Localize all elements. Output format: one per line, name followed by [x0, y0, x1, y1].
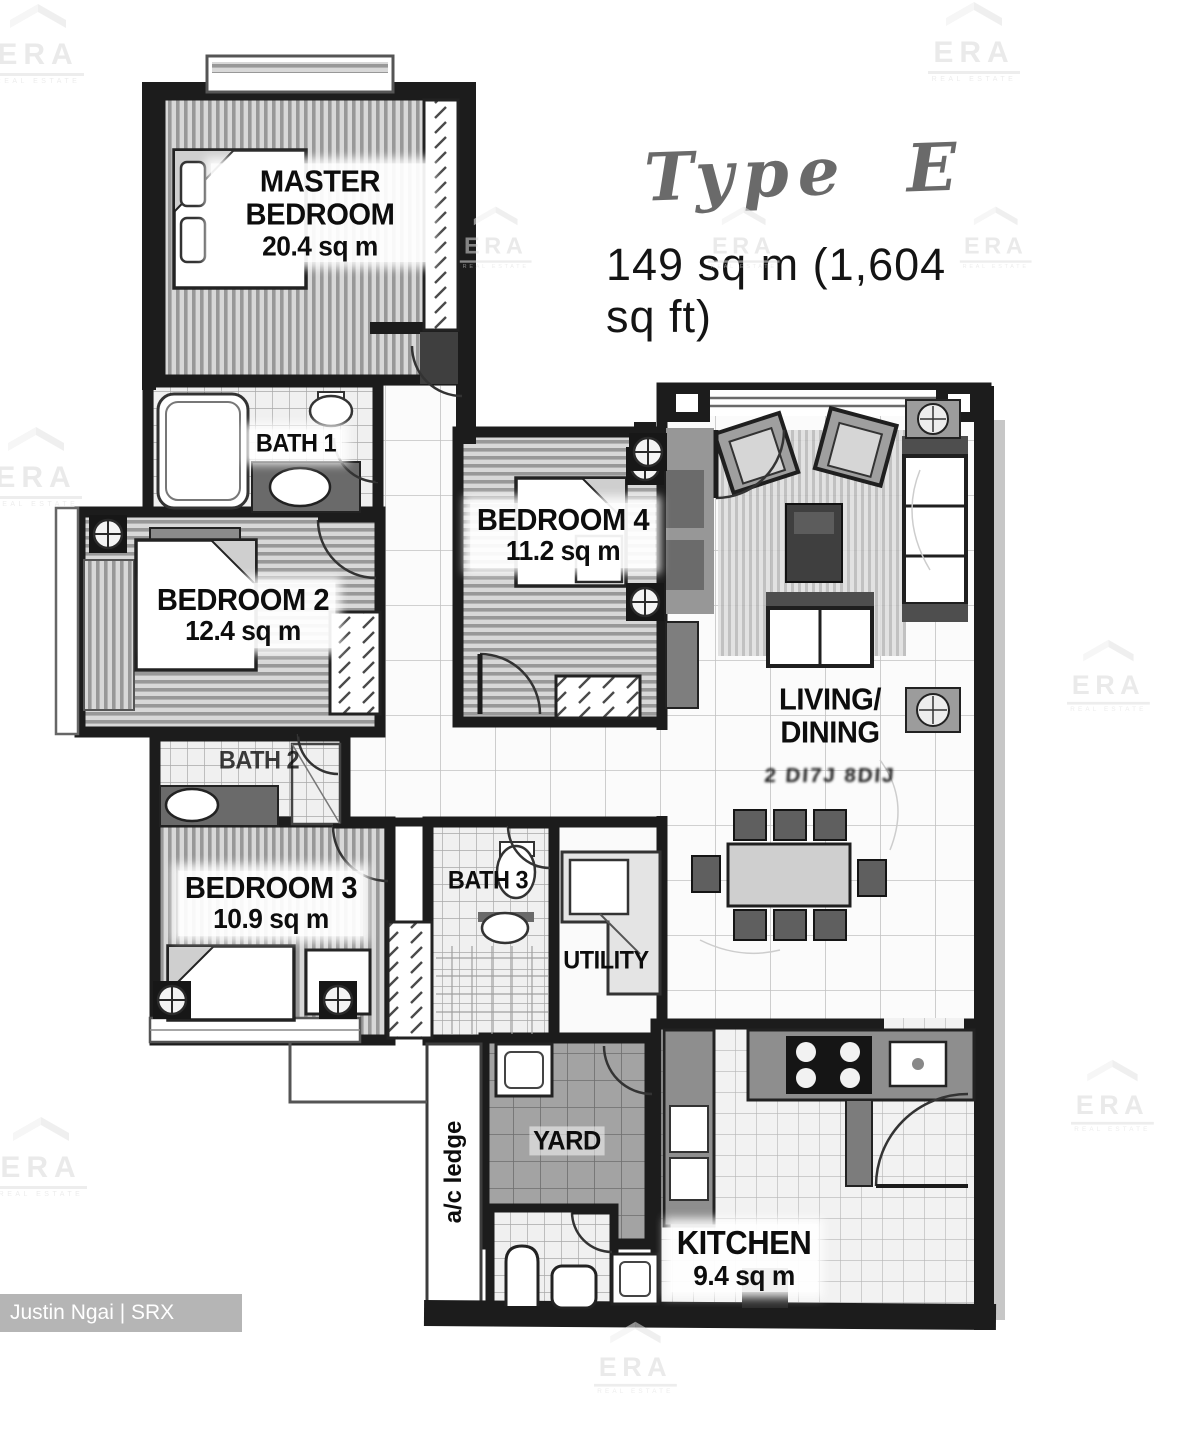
- agent-credit-bar: Justin Ngai | SRX PROPERTY: [0, 1294, 242, 1332]
- closet-bedroom4: [556, 676, 640, 718]
- side-table-bottom: [906, 688, 960, 732]
- sink-bath1: [270, 468, 330, 506]
- plan-area-text: 149 sq m (1,604 sq ft): [606, 239, 994, 343]
- plan-type-title: Type E: [643, 127, 967, 216]
- floor-plan-page: Type E 149 sq m (1,604 sq ft) MASTER BED…: [0, 0, 1188, 1440]
- washer-yard: [496, 1044, 552, 1096]
- bed-bedroom2: [136, 528, 256, 670]
- wardrobe-bedroom3: [388, 922, 432, 1038]
- sink-wc: [506, 1246, 538, 1306]
- toilet-bath3: [497, 846, 535, 898]
- bathtub-icon: [158, 394, 248, 508]
- washer-icon: [612, 1254, 658, 1304]
- bay-window-master: [207, 56, 393, 92]
- sink-bath3: [482, 913, 528, 943]
- bay-window-bedroom2: [56, 508, 78, 734]
- ac-ledge-area: [427, 1044, 481, 1306]
- loveseat: [766, 592, 874, 666]
- wardrobe-master: [424, 100, 458, 330]
- sink-bath2: [166, 789, 218, 821]
- toilet-wc: [552, 1266, 596, 1308]
- toilet-bath1: [310, 396, 352, 426]
- coffee-table: [786, 504, 842, 582]
- floor-plan-drawing: [0, 0, 1188, 1440]
- bed-bedroom4: [516, 478, 626, 586]
- sofa: [902, 436, 968, 622]
- side-table-top: [906, 400, 960, 438]
- wardrobe-bedroom2: [330, 612, 380, 714]
- bed-master: [174, 150, 306, 288]
